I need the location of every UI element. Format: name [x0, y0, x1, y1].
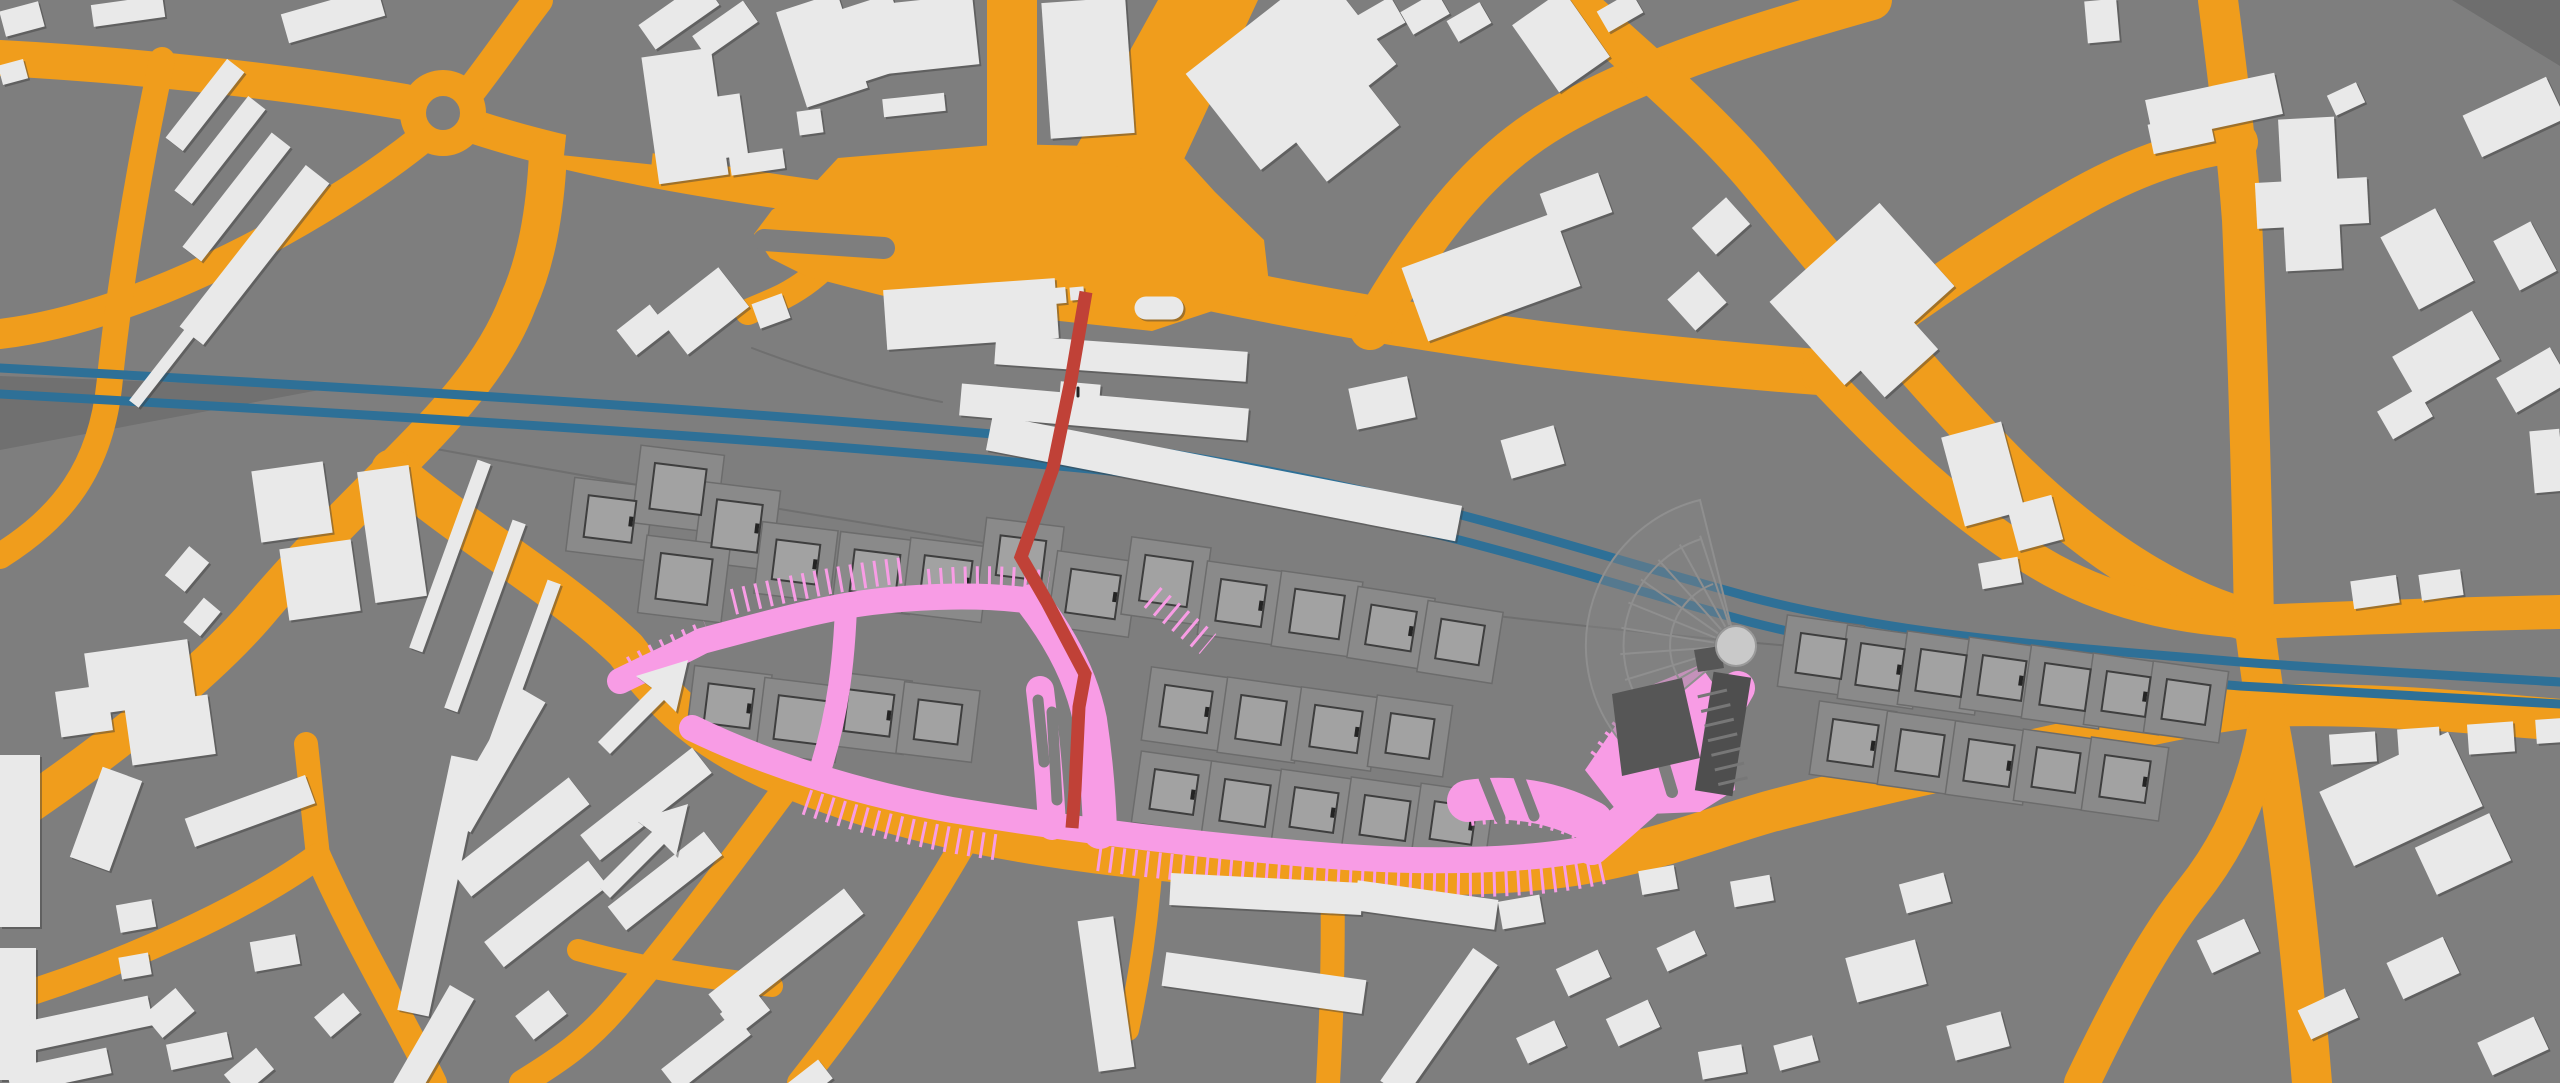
house	[1795, 633, 1846, 679]
building	[2084, 0, 2120, 43]
building	[279, 539, 360, 620]
building	[124, 694, 216, 765]
building	[55, 685, 113, 738]
roads-orange-segment	[2254, 612, 2560, 622]
house	[1359, 795, 1410, 841]
house	[1219, 779, 1270, 827]
road-islands-shape	[764, 240, 884, 248]
building	[2255, 177, 2369, 229]
house	[1309, 705, 1362, 753]
building	[2529, 429, 2560, 493]
building	[1041, 0, 1134, 139]
building	[2535, 718, 2560, 744]
building	[865, 0, 980, 75]
house	[2031, 747, 2080, 793]
house	[1435, 619, 1485, 665]
house	[655, 553, 712, 605]
building	[0, 948, 36, 1080]
house	[1235, 695, 1287, 745]
house	[1827, 719, 1878, 767]
house	[1365, 605, 1417, 652]
road-islands	[764, 240, 884, 248]
building	[2397, 727, 2441, 758]
house	[649, 463, 706, 515]
house	[1385, 713, 1434, 759]
house	[1289, 589, 1345, 640]
building	[1041, 287, 1066, 305]
house	[2039, 663, 2090, 711]
building	[698, 93, 748, 160]
building	[0, 755, 40, 927]
house	[711, 499, 763, 552]
house	[1159, 685, 1212, 733]
house	[1915, 649, 1966, 697]
street-slots-shape	[1052, 712, 1057, 800]
street-slots-shape	[1038, 700, 1044, 762]
house	[1065, 569, 1121, 620]
house	[1895, 729, 1944, 777]
building	[2329, 731, 2377, 764]
house	[2161, 679, 2210, 725]
map-canvas	[0, 0, 2560, 1083]
house	[844, 689, 895, 736]
house	[1215, 579, 1266, 627]
building	[796, 108, 823, 135]
house	[914, 699, 963, 744]
house	[704, 683, 755, 728]
site-plan-map	[0, 0, 2560, 1083]
landmark-circle	[1716, 626, 1756, 666]
house	[772, 539, 821, 584]
house	[1963, 739, 2014, 787]
building	[2467, 721, 2515, 754]
building	[251, 461, 332, 542]
house	[2099, 755, 2150, 803]
house	[584, 495, 637, 543]
